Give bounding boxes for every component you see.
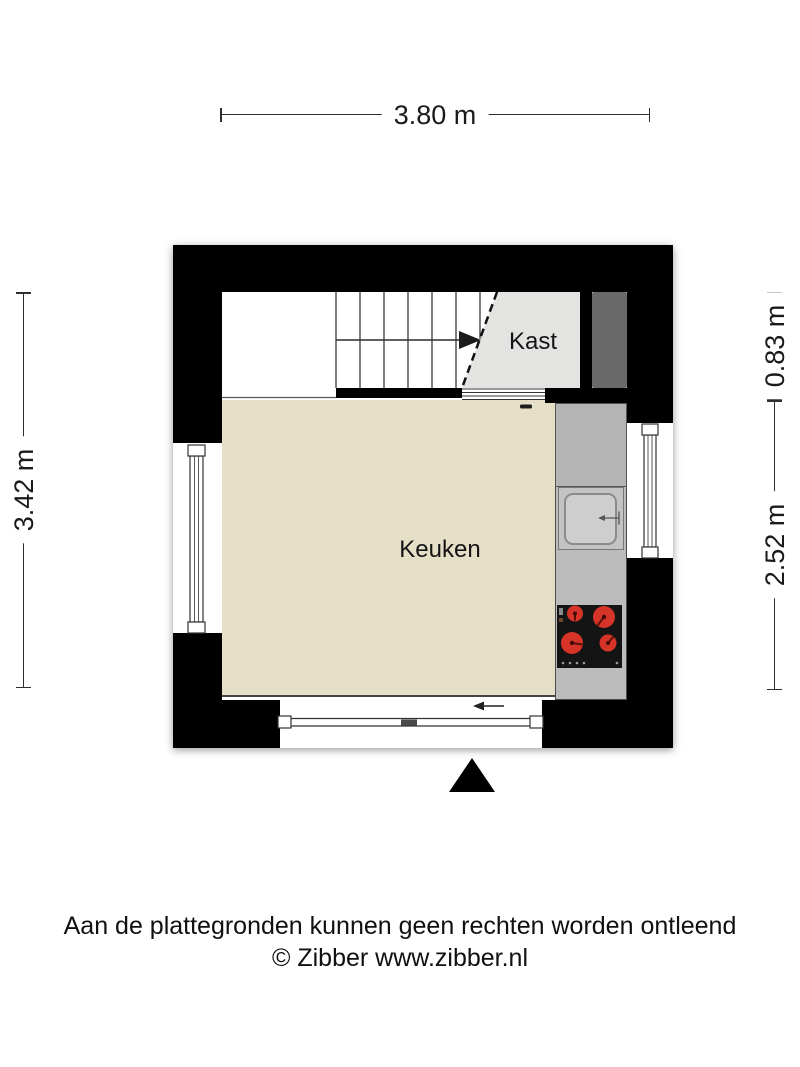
floor-plan: Keuken Kast (173, 245, 673, 748)
dimension-right-lower-tick-top (767, 400, 782, 402)
wall-under-stairs (336, 388, 462, 398)
entrance-arrow-icon (449, 758, 495, 792)
sink-basin (564, 493, 617, 545)
door-slide-arrow-icon (473, 702, 484, 711)
dimension-top-tick-right (649, 108, 651, 122)
dimension-right-upper: 0.83 m (764, 292, 786, 400)
closet-label: Kast (473, 327, 593, 357)
wall-bottom-right (542, 700, 673, 748)
footer-disclaimer: Aan de plattegronden kunnen geen rechten… (0, 910, 800, 942)
footer: Aan de plattegronden kunnen geen rechten… (0, 910, 800, 974)
footer-copyright: © Zibber www.zibber.nl (0, 942, 800, 974)
stairs (222, 292, 497, 398)
wall-right-lower (627, 558, 673, 700)
wall-right-upper (627, 245, 673, 423)
dimension-top: 3.80 m (220, 101, 650, 129)
dimension-left-label: 3.42 m (10, 437, 38, 544)
dimension-left-tick-bottom (16, 687, 31, 689)
dimension-top-label: 3.80 m (382, 101, 489, 129)
dimension-right-lower-tick-bottom (767, 689, 782, 691)
wall-left-upper (173, 292, 222, 443)
dimension-left: 3.42 m (13, 292, 35, 688)
stair-steps (336, 292, 480, 388)
cooktop (557, 605, 622, 668)
wall-top (173, 245, 673, 292)
dimension-top-tick-left (220, 108, 222, 122)
dimension-right-lower: 2.52 m (764, 400, 786, 690)
dimension-right-lower-label: 2.52 m (761, 492, 789, 599)
shaft-duct (592, 292, 627, 388)
kitchen-label: Keuken (360, 535, 520, 565)
wall-bottom-left (173, 700, 280, 748)
wall-under-closet (545, 388, 627, 403)
kitchen-counter-upper (555, 403, 627, 487)
closet-threshold (462, 388, 545, 400)
window-right (642, 424, 658, 558)
dimension-left-tick-top (16, 292, 31, 294)
sliding-door (278, 702, 543, 729)
door-handle (401, 720, 417, 726)
floorplan-page: 3.80 m 3.42 m 0.83 m 2.52 m (0, 0, 800, 1067)
window-left (188, 445, 205, 633)
dimension-right-upper-label: 0.83 m (761, 293, 789, 400)
